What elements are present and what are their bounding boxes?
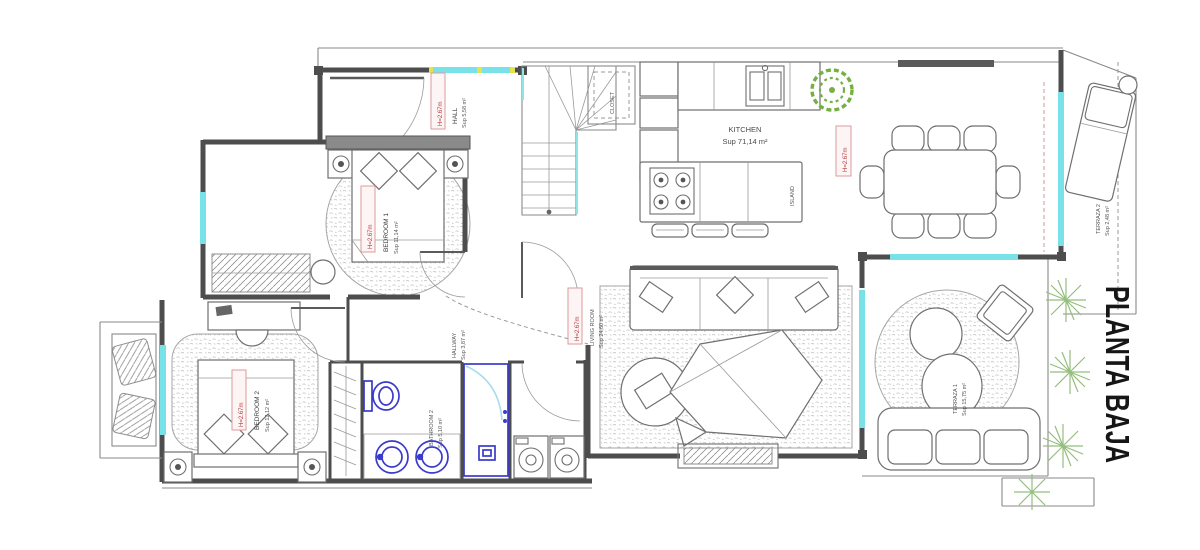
ceiling-dashed-line: [446, 296, 588, 344]
terraza1-area: Sup 15,75 m²: [962, 383, 968, 416]
fireplace: [678, 444, 778, 468]
living-label: H=2.67m LIVING ROOM Sup 24,60 m²: [568, 288, 605, 348]
round-table: [910, 308, 962, 360]
bar-stools: [652, 224, 768, 237]
stairs: [522, 66, 616, 215]
outdoor-sofa: [878, 408, 1040, 470]
bedroom2-area: Sup 12,12 m²: [265, 399, 271, 432]
bathroom2-name: BATHROOM 2: [429, 410, 435, 446]
sun-lounger: [1065, 82, 1137, 202]
terraza2-name: TERRAZA 2: [1096, 204, 1102, 234]
bedroom2-height: H=2.67m: [239, 402, 245, 427]
living-area: Sup 24,60 m²: [599, 315, 605, 348]
bedroom1-name: BEDROOM 1: [383, 213, 390, 252]
hall-name: HALL: [452, 107, 459, 124]
bedroom2-name: BEDROOM 2: [254, 391, 261, 430]
hallway-area-label: Sup 3,87 m²: [461, 330, 467, 360]
living-height: H=2.67m: [575, 316, 581, 341]
plan-title: PLANTA BAJA: [1098, 286, 1136, 464]
terraza2-area: Sup 2,48 m²: [1105, 206, 1111, 236]
laundry-door-arc: [522, 363, 580, 421]
bathroom2-area: Sup 5,10 m²: [438, 418, 444, 448]
stool: [311, 260, 335, 284]
floor-plan-page: H=2.67m HALL Sup 5,58 m² CLOSET: [0, 0, 1200, 550]
hallway-name: HALLWAY: [452, 332, 458, 358]
closet-label: CLOSET: [610, 91, 616, 114]
bedroom1-height: H=2.67m: [368, 224, 374, 249]
island-label: ISLAND: [790, 186, 796, 206]
terraza1-name: TERRAZA 1: [953, 384, 959, 414]
dining-table: [884, 150, 996, 214]
left-alcove: [100, 322, 162, 458]
wardrobe-1: [212, 254, 335, 292]
hall-height: H=2.67m: [438, 101, 444, 126]
kitchen-height: H=2.67m: [843, 147, 849, 172]
hallway-area: HALLWAY Sup 3,87 m²: [446, 242, 588, 360]
kitchen-area: Sup 71,14 m²: [722, 137, 768, 146]
dining-top-bench: [898, 60, 994, 67]
toilet: [364, 381, 399, 411]
washer: [514, 436, 548, 478]
dining-table-group: [860, 126, 1020, 238]
wardrobe-2-hangers: [334, 366, 356, 476]
laundry: [514, 363, 584, 478]
floor-plan-drawing: H=2.67m HALL Sup 5,58 m² CLOSET: [0, 0, 1200, 550]
kitchen-island: ISLAND: [640, 162, 802, 237]
bed1-headboard: [326, 136, 470, 149]
hall-area: Sup 5,58 m²: [462, 98, 468, 128]
bedroom1-area: Sup 11,14 m²: [394, 221, 400, 254]
closet: CLOSET: [588, 66, 635, 124]
side-table: [1119, 76, 1137, 94]
shower: [464, 364, 508, 476]
bathroom-2: BATHROOM 2 Sup 5,10 m²: [364, 381, 460, 478]
dryer: [550, 436, 584, 478]
living-name: LIVING ROOM: [590, 309, 596, 346]
kitchen-name: KITCHEN: [729, 125, 762, 134]
terraza2: TERRAZA 2 Sup 2,48 m²: [1065, 76, 1137, 236]
double-sink: [364, 434, 460, 478]
hall-label: H=2.67m HALL Sup 5,58 m²: [431, 73, 468, 129]
sofa: [630, 266, 838, 330]
